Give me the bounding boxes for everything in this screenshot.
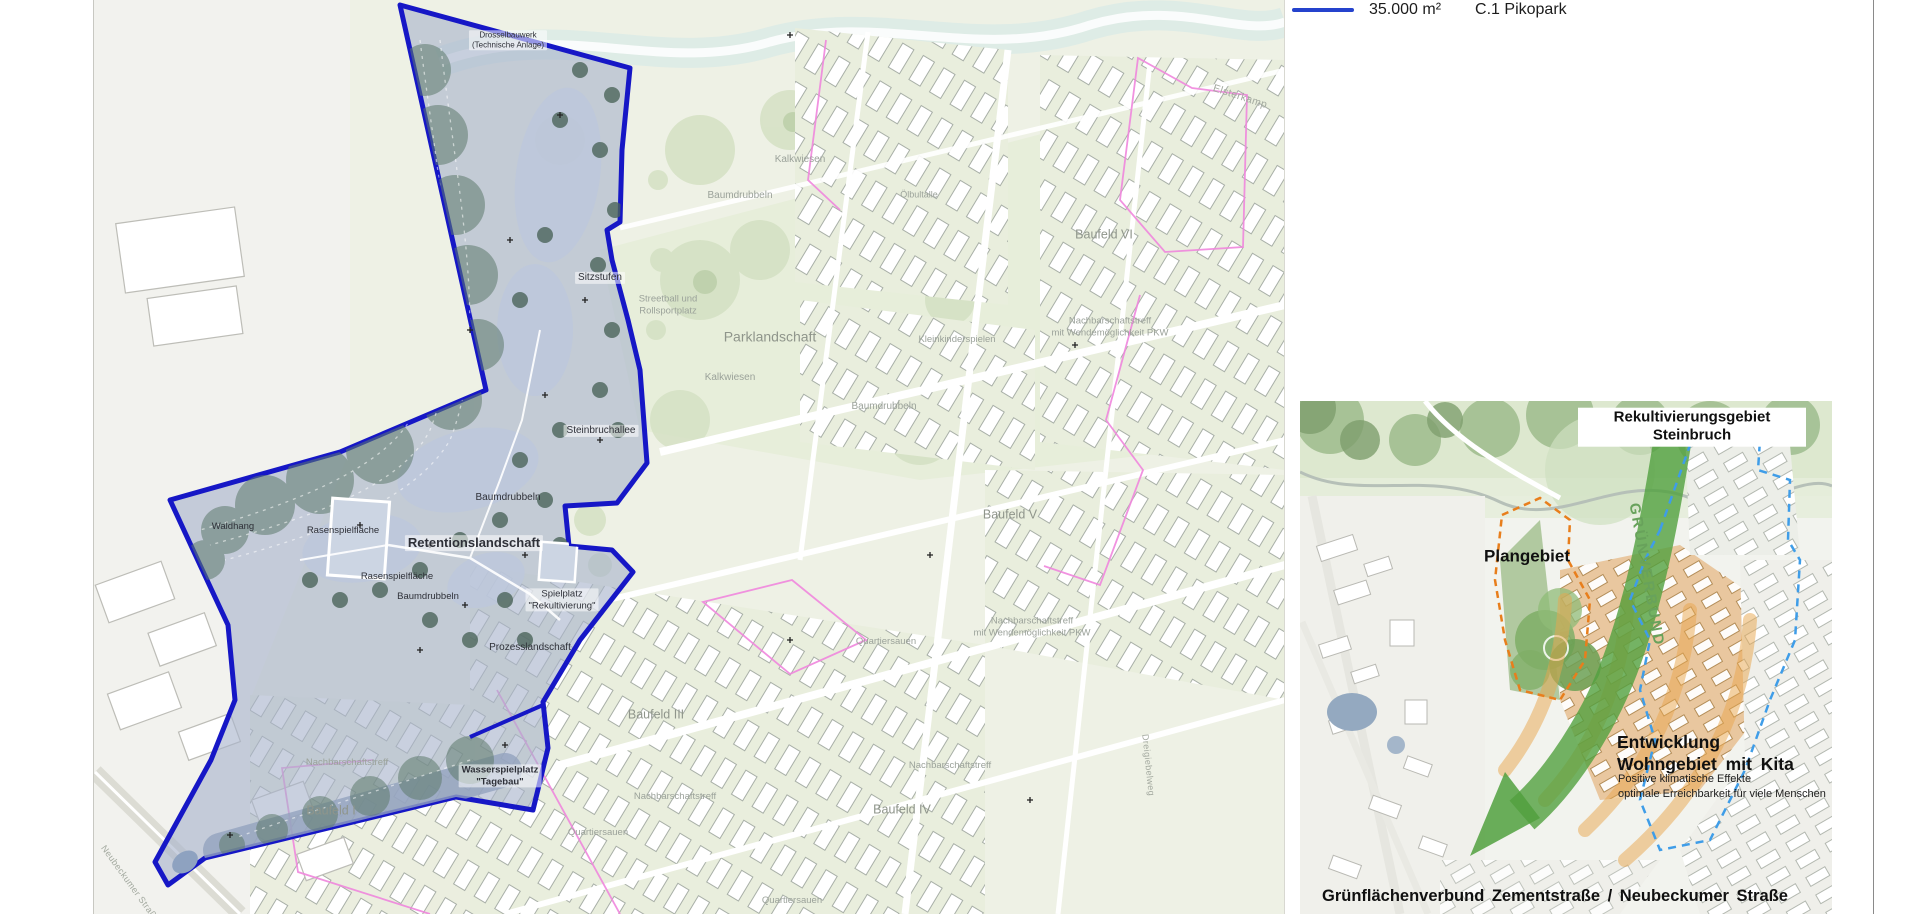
main-map (93, 0, 1285, 914)
inset-map (1284, 381, 1832, 914)
site-plan-page: 35.000 m² C.1 Pikopark Drosselbauwerk (T… (0, 0, 1920, 914)
legend-line-icon (1292, 8, 1354, 12)
site-plan-canvas (0, 0, 1920, 914)
legend: 35.000 m² C.1 Pikopark (1292, 1, 1567, 19)
legend-name: C.1 Pikopark (1475, 1, 1567, 19)
quarry-area (1545, 415, 1655, 525)
inset-lake (1327, 693, 1377, 731)
legend-area: 35.000 m² (1369, 1, 1441, 19)
